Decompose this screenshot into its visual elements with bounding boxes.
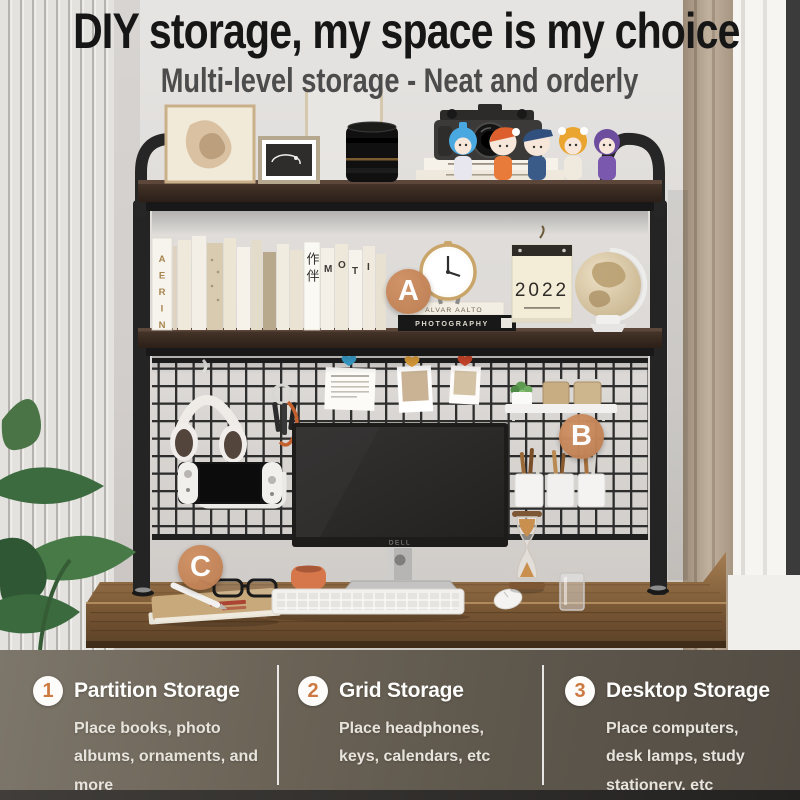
photo-frame-small	[260, 138, 318, 182]
feature-2-title: Grid Storage	[339, 679, 464, 703]
camera-lens	[346, 122, 398, 182]
monitor-brand-logo: DELL	[389, 540, 411, 547]
feature-1-title: Partition Storage	[74, 679, 240, 703]
book-spine-aerin: AERIN	[157, 254, 168, 337]
bottom-strip	[0, 790, 800, 800]
subheadline: Multi-level storage - Neat and orderly	[0, 62, 800, 101]
product-banner: AERIN 作伴 M O T I ALVAR AALTO PHOTOGRAPHY	[0, 0, 800, 800]
marker-b-badge: B	[559, 414, 604, 459]
window-sill	[728, 575, 800, 650]
feature-head: 3 Desktop Storage	[565, 676, 779, 706]
book-letter-m: M	[324, 264, 332, 275]
book-spine-companion: 作伴	[305, 252, 320, 286]
headline-text: DIY storage, my space is my choice	[73, 2, 739, 60]
feature-divider	[277, 665, 279, 785]
book-letter-i: I	[367, 262, 370, 273]
feature-3-number-badge: 3	[565, 676, 595, 706]
feature-head: 2 Grid Storage	[298, 676, 503, 706]
glass-cup	[560, 573, 584, 610]
feature-desktop-storage: 3 Desktop Storage Place computers, desk …	[565, 676, 779, 800]
feature-3-title: Desktop Storage	[606, 679, 770, 703]
switch-console	[178, 462, 284, 506]
feature-2-number-badge: 2	[298, 676, 328, 706]
features-bar: 1 Partition Storage Place books, photo a…	[0, 650, 800, 790]
subheadline-text: Multi-level storage - Neat and orderly	[161, 62, 639, 101]
camera	[434, 104, 542, 160]
shelf-board-white	[505, 404, 617, 413]
feature-head: 1 Partition Storage	[33, 676, 265, 706]
feature-partition-storage: 1 Partition Storage Place books, photo a…	[33, 676, 265, 800]
feature-divider	[542, 665, 544, 785]
keyboard	[272, 589, 464, 614]
feature-1-number-badge: 1	[33, 676, 63, 706]
feature-grid-storage: 2 Grid Storage Place headphones, keys, c…	[298, 676, 503, 772]
left-joycon	[178, 462, 198, 504]
headline: DIY storage, my space is my choice	[0, 2, 800, 60]
marker-c-badge: C	[178, 545, 223, 590]
book-letter-t: T	[352, 266, 358, 277]
book-letter-o: O	[338, 260, 346, 271]
marker-a-badge: A	[386, 269, 431, 314]
art-print-frame	[166, 106, 254, 182]
orange-box	[291, 566, 326, 590]
calendar-year: 2022	[515, 280, 569, 301]
feature-3-description: Place computers, desk lamps, study stati…	[606, 715, 779, 800]
book-stack-subtitle: PHOTOGRAPHY	[415, 319, 489, 328]
feature-1-description: Place books, photo albums, ornaments, an…	[74, 715, 265, 800]
book-stack-title: ALVAR AALTO	[425, 307, 483, 314]
feature-2-description: Place headphones, keys, calendars, etc	[339, 715, 503, 772]
